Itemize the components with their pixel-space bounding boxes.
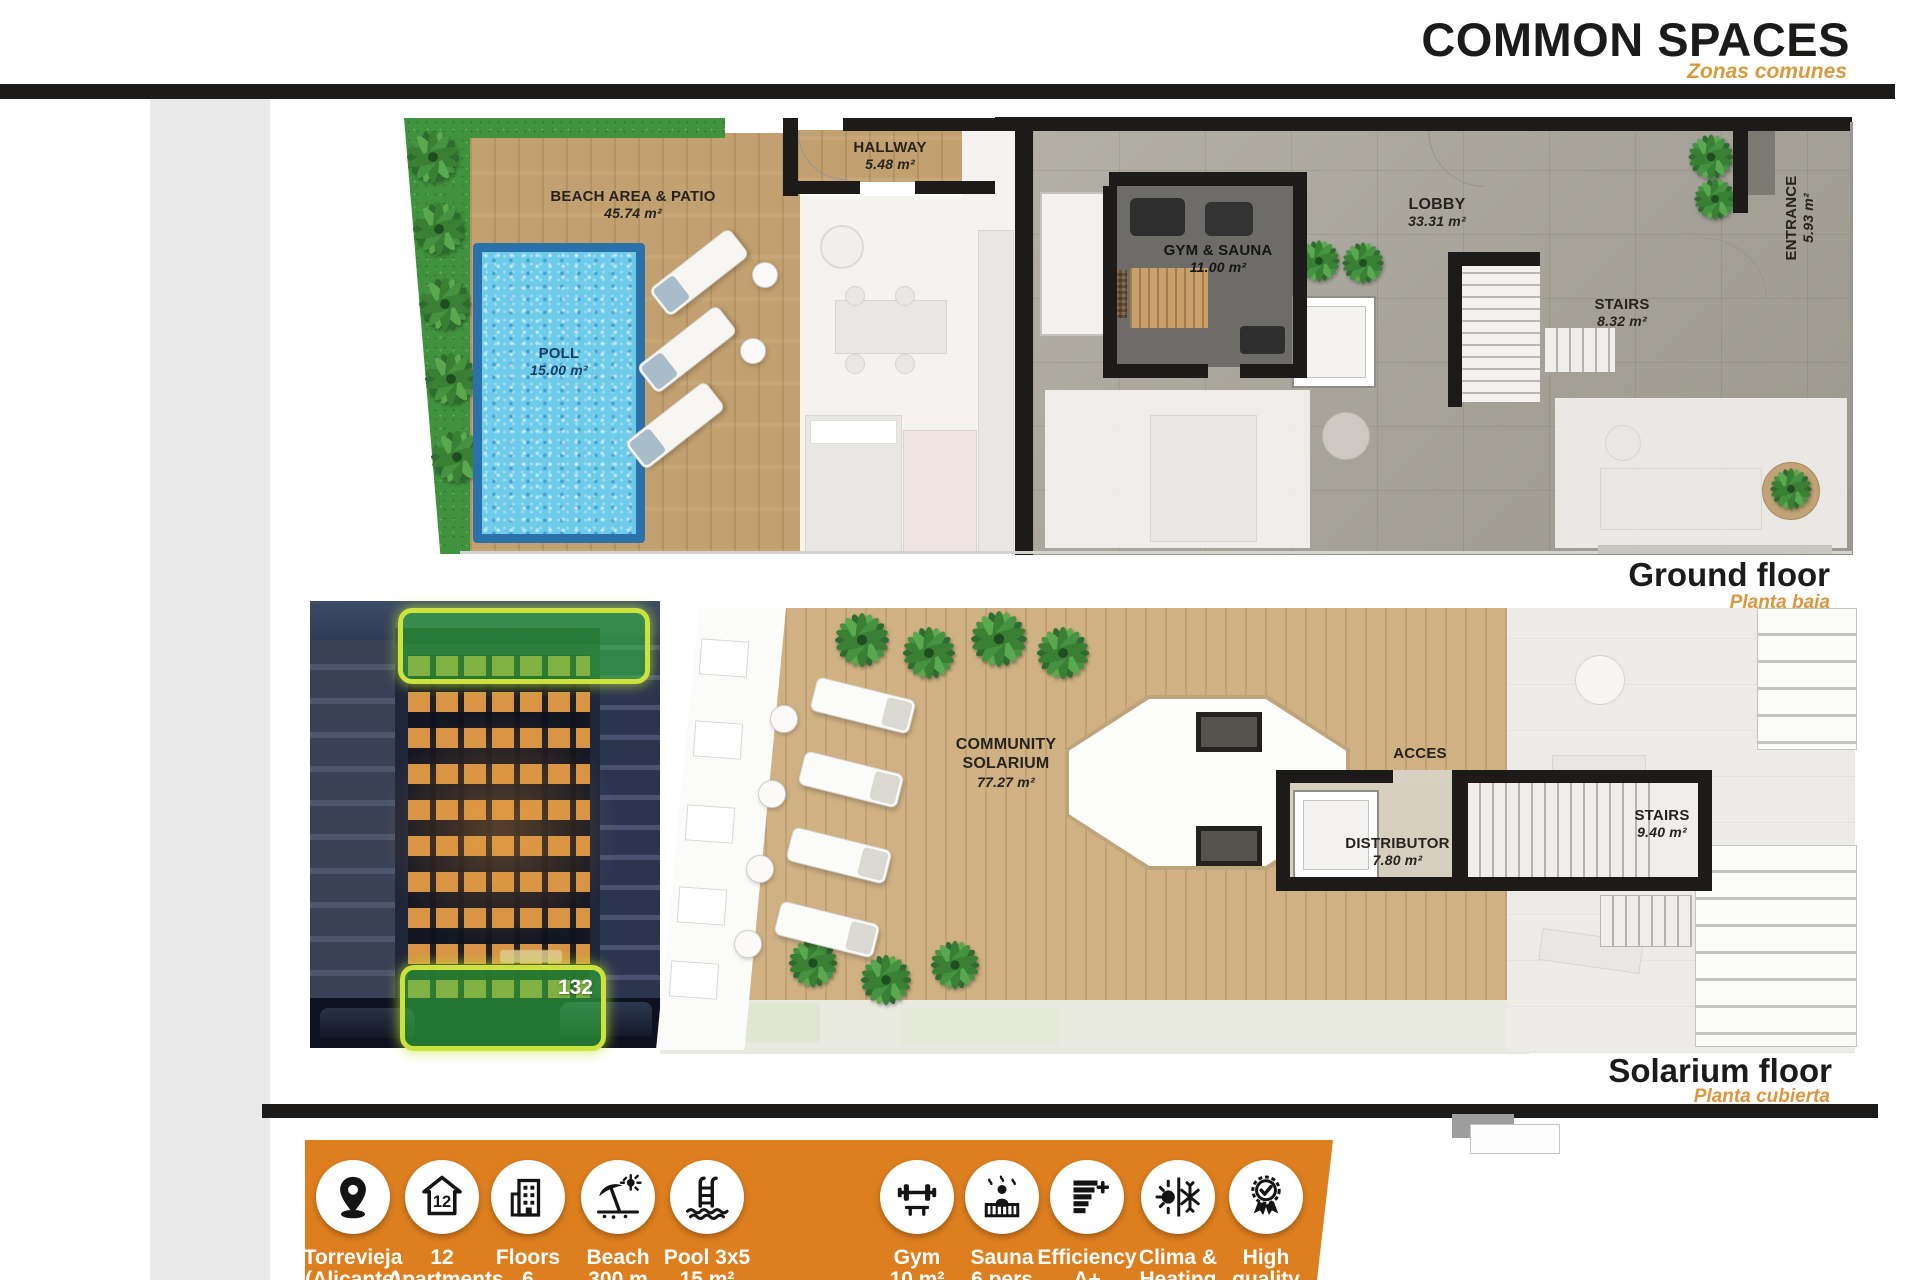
wall — [1276, 770, 1393, 783]
plan-edge — [1850, 122, 1853, 555]
palm-icon — [410, 200, 468, 258]
pool-label: POLL 15.00 m² — [473, 345, 645, 379]
clima-icon — [1141, 1160, 1215, 1234]
palm-icon — [968, 608, 1030, 670]
door-gap — [800, 118, 843, 130]
access-label: ACCES — [1370, 745, 1470, 762]
ghost-armchair — [1322, 412, 1370, 460]
beach-area-label: BEACH AREA & PATIO 45.74 m² — [508, 188, 758, 222]
room-name: POLL — [539, 345, 580, 362]
solarium-floor-plan: COMMUNITY SOLARIUM 77.27 m² ACCES DISTRI… — [0, 595, 1920, 1065]
grass-top-band — [467, 118, 725, 138]
apartments-icon: 12 — [405, 1160, 479, 1234]
access-doorway — [1393, 770, 1452, 783]
location-pin-icon — [316, 1160, 390, 1234]
room-area: 45.74 m² — [508, 205, 758, 222]
planter-box — [685, 804, 735, 843]
svg-text:12: 12 — [433, 1193, 451, 1211]
ghost-table — [1605, 425, 1641, 461]
flyer-page: COMMON SPACES Zonas comunes POLL 15.00 m… — [0, 0, 1920, 1280]
side-table — [734, 930, 762, 958]
efficiency-icon — [1050, 1160, 1124, 1234]
ghost-bed — [903, 430, 977, 552]
banner-label: Pool 3x5 — [652, 1247, 762, 1269]
palm-icon — [858, 952, 914, 1008]
room-name: STAIRS — [1594, 296, 1649, 313]
room-name: BEACH AREA & PATIO — [550, 188, 715, 205]
room-area: 11.00 m² — [1143, 259, 1293, 276]
palm-icon — [1692, 176, 1738, 222]
quality-icon — [1229, 1160, 1303, 1234]
room-area: 77.27 m² — [916, 773, 1096, 792]
side-table — [746, 855, 774, 883]
palm-icon — [422, 350, 480, 408]
palm-icon — [1768, 466, 1814, 512]
side-table — [740, 338, 766, 364]
gym-icon — [880, 1160, 954, 1234]
wall — [1452, 770, 1712, 783]
room-name: ENTRANCE — [1783, 176, 1800, 261]
ghost-table — [1575, 655, 1625, 705]
pool-icon — [670, 1160, 744, 1234]
pergola — [1757, 608, 1857, 750]
wall — [1448, 252, 1462, 407]
stairs-label: STAIRS 8.32 m² — [1572, 296, 1672, 330]
ghost-bed — [1150, 415, 1257, 542]
room-area: 33.31 m² — [1377, 213, 1497, 230]
wall — [1103, 364, 1208, 378]
ghost-kitchen-counter — [978, 230, 1014, 552]
ground-floor-plan: POLL 15.00 m² — [0, 0, 1920, 620]
lower-ghost-patch — [900, 1007, 1060, 1045]
plan-edge — [1598, 545, 1832, 554]
banner-sublabel: 15 m² — [652, 1269, 762, 1280]
banner-item-quality: High quality — [1211, 1160, 1321, 1280]
side-table — [752, 262, 778, 288]
wall — [1276, 877, 1712, 891]
distributor-label: DISTRIBUTOR 7.80 m² — [1330, 835, 1465, 869]
room-name: ACCES — [1393, 745, 1447, 762]
community-solarium-label: COMMUNITY SOLARIUM 77.27 m² — [916, 735, 1096, 792]
room-name: LOBBY — [1409, 196, 1466, 213]
elevator-car — [1302, 306, 1366, 378]
room-name: STAIRS — [1634, 807, 1689, 824]
room-name: HALLWAY — [853, 139, 926, 156]
pool — [473, 243, 645, 543]
side-table — [770, 705, 798, 733]
palm-icon — [404, 128, 462, 186]
wall — [995, 117, 1852, 131]
room-name: GYM & SAUNA — [1164, 242, 1273, 259]
sauna-icon — [965, 1160, 1039, 1234]
ghost-dining-table — [835, 300, 947, 354]
sauna-bench — [1130, 268, 1208, 328]
ghost-chair — [895, 286, 915, 306]
wall — [843, 118, 995, 131]
ghost-chair — [895, 354, 915, 374]
gym-equipment — [1240, 326, 1285, 354]
amenity-banner: Torrevieja (Alicante) 12 12 Apartments F… — [305, 1140, 1333, 1280]
palm-icon — [1034, 624, 1092, 682]
banner-sublabel: quality — [1211, 1269, 1321, 1280]
room-area: 7.80 m² — [1330, 852, 1465, 869]
wall — [1733, 123, 1748, 213]
entrance-label: ENTRANCE 5.93 m² — [1783, 158, 1823, 278]
ghost-chair — [845, 354, 865, 374]
room-area: 15.00 m² — [473, 362, 645, 379]
palm-icon — [832, 610, 892, 670]
wall — [915, 181, 995, 194]
ghost-sofa — [1600, 468, 1762, 530]
pergola — [1695, 845, 1857, 1047]
wall — [1276, 770, 1290, 891]
palm-icon — [1686, 132, 1736, 182]
ghost-pillow — [810, 420, 897, 444]
gym-equipment — [1130, 198, 1185, 236]
banner-label: High — [1211, 1247, 1321, 1269]
stairs-run — [1545, 328, 1615, 372]
solarium-stairs-label: STAIRS 9.40 m² — [1612, 807, 1712, 841]
ground-floor-caption: Ground floor — [1628, 556, 1830, 594]
ghost-table — [820, 225, 864, 269]
room-area: 9.40 m² — [1612, 824, 1712, 841]
hallway-label: HALLWAY 5.48 m² — [830, 139, 950, 173]
room-area: 8.32 m² — [1572, 313, 1672, 330]
stairs-run — [1462, 262, 1540, 402]
planter-box — [699, 638, 749, 677]
beach-icon — [581, 1160, 655, 1234]
palm-icon — [900, 624, 958, 682]
wall — [1015, 131, 1033, 555]
shaft — [1040, 192, 1106, 336]
side-table — [758, 780, 786, 808]
solarium-floor-caption: Solarium floor — [1608, 1052, 1832, 1090]
palm-icon — [928, 938, 982, 992]
floors-icon — [491, 1160, 565, 1234]
wall — [1109, 172, 1307, 186]
palm-icon — [416, 275, 474, 333]
roof-vent — [1196, 712, 1262, 752]
private-steps — [1600, 895, 1692, 947]
banner-item-pool: Pool 3x5 15 m² — [652, 1160, 762, 1280]
room-area: 5.93 m² — [1800, 158, 1817, 278]
gym-equipment — [1205, 202, 1253, 236]
palm-icon — [1340, 240, 1386, 286]
wall — [1103, 186, 1117, 378]
room-name: DISTRIBUTOR — [1345, 835, 1449, 852]
wall — [1240, 364, 1307, 378]
room-name: COMMUNITY SOLARIUM — [956, 736, 1056, 772]
ghost-chair — [845, 286, 865, 306]
planter-box — [669, 960, 719, 999]
planter-box — [693, 720, 743, 759]
footer-divider-bar — [262, 1104, 1878, 1118]
planter-box — [677, 886, 727, 925]
lobby-label: LOBBY 33.31 m² — [1377, 196, 1497, 230]
gym-label: GYM & SAUNA 11.00 m² — [1143, 242, 1293, 276]
ui-artifact — [1470, 1124, 1560, 1154]
wall — [783, 181, 860, 194]
wall — [1293, 186, 1307, 378]
room-area: 5.48 m² — [830, 156, 950, 173]
roof-vent — [1196, 826, 1262, 866]
